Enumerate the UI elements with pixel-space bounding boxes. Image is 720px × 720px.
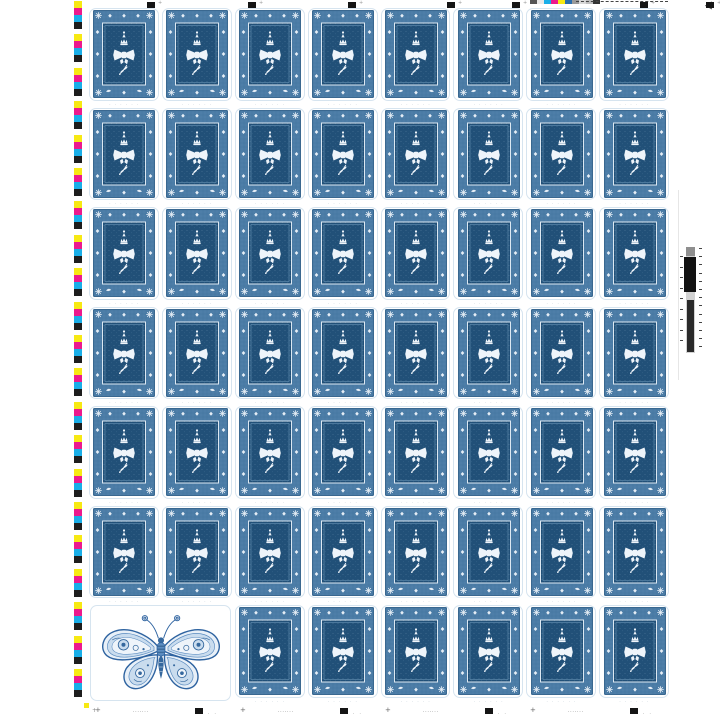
stamp-artwork [384,508,448,596]
stamp-microtext: · · · · · · [161,600,234,604]
stamp-microtext: · · · · · · [234,202,307,206]
cyan-patch [74,449,82,456]
density-block-dark [684,257,696,292]
density-guide-line [678,190,679,380]
yellow-patch [74,268,82,275]
cmyk-patch-group [74,435,82,463]
black-patch [74,323,82,330]
stamp-cell: · · · · · · [88,207,161,307]
yellow-patch [74,235,82,242]
bottom-microtext: ······· [568,710,584,714]
black-patch [74,356,82,363]
cmyk-patch-group [74,68,82,96]
density-tick [680,298,683,299]
magenta-patch [74,309,82,316]
magenta-patch [74,108,82,115]
registration-plus-mark: + [458,0,462,6]
yellow-patch [74,502,82,509]
cmyk-patch-group [74,335,82,363]
black-patch [74,690,82,697]
stamp-cell: · · · · · · [234,8,307,108]
magenta-patch [74,175,82,182]
stamp-artwork [165,110,229,198]
stamp-cell: · · · · · · [525,207,598,307]
density-tick [699,289,702,290]
stamp-cell: · · · · · · [88,307,161,407]
bottom-micro-dots: · · [498,711,508,716]
stamp-cell: · · · · · · [234,605,307,705]
cyan-patch [74,650,82,657]
stamp-microtext: · · · · · · [525,302,598,306]
cmyk-patch-group [74,636,82,664]
stamp-cell: · · · · · · [161,8,234,108]
cmyk-patch-group [74,201,82,229]
mini-strip-patch [544,0,551,4]
density-tick [699,305,702,306]
cyan-patch [74,549,82,556]
stamp-cell: · · · · · · [452,605,525,705]
black-patch [74,289,82,296]
stamp-cell: · · · · · · [88,506,161,606]
bottom-micro-dots: · · [643,711,653,716]
stamp-cell: · · · · · · [307,605,380,705]
stamp-artwork [530,110,594,198]
cyan-patch [74,483,82,490]
cmyk-patch-group [74,135,82,163]
stamp-cell: · · · · · · [525,605,598,705]
stamp-artwork [384,607,448,695]
registration-plus-mark: + [651,0,655,6]
butterfly-pane [88,605,234,705]
bottom-micro-dots: · · [353,711,363,716]
cyan-patch [74,249,82,256]
stamp-microtext: · · · · · · [380,501,453,505]
stamp-artwork [92,10,156,98]
density-tick [680,330,683,331]
stamp-microtext: · · · · · · [380,401,453,405]
stamp-artwork [530,309,594,397]
cyan-patch [74,382,82,389]
black-patch [74,389,82,396]
magenta-patch [74,576,82,583]
stamp-microtext: · · · · · · [452,202,525,206]
mini-strip-patch [565,0,572,4]
cyan-patch [74,683,82,690]
registration-plus-mark: + [259,0,263,6]
magenta-patch [74,342,82,349]
cmyk-patch-group [74,235,82,263]
stamp-microtext: · · · · · · [307,103,380,107]
cmyk-patch-group [74,502,82,530]
registration-plus-mark: + [359,0,363,6]
density-tick [699,264,702,265]
stamp-cell: · · · · · · [234,207,307,307]
cmyk-patch-group [74,101,82,129]
stamp-microtext: · · · · · · [525,103,598,107]
density-tick [680,319,683,320]
stamp-microtext: · · · · · · [380,103,453,107]
bottom-microtext: ······· [133,710,149,714]
stamp-artwork [603,408,667,496]
cyan-patch [74,583,82,590]
magenta-patch [74,375,82,382]
stamp-artwork [457,607,521,695]
butterfly-artwork [90,605,232,701]
stamp-cell: · · · · · · [380,307,453,407]
cyan-patch [74,215,82,222]
stamp-artwork [238,209,302,297]
magenta-patch [74,676,82,683]
registration-cross: + [385,706,391,714]
mini-strip-patch [537,0,544,4]
stamp-microtext: · · · · · · [598,202,671,206]
density-tick [680,340,683,341]
cyan-patch [74,48,82,55]
stamp-cell: · · · · · · [307,108,380,208]
stamp-artwork [530,408,594,496]
stamp-cell: · · · · · · [452,307,525,407]
stamp-microtext: · · · · · · [234,302,307,306]
stamp-microtext: · · · · · · [88,302,161,306]
cmyk-patch-group [74,368,82,396]
density-strip [676,190,706,390]
magenta-patch [74,41,82,48]
stamp-artwork [603,309,667,397]
stamp-cell: · · · · · · [452,108,525,208]
stamp-microtext: · · · · · · [307,600,380,604]
stamp-artwork [457,508,521,596]
bottom-microtext: ······· [278,710,294,714]
magenta-patch [74,609,82,616]
yellow-patch [74,636,82,643]
stamp-artwork [311,607,375,695]
cmyk-patch-group [74,34,82,62]
stamp-artwork [311,10,375,98]
stamp-microtext: · · · · · · [380,600,453,604]
stamp-microtext: · · · · · · [452,600,525,604]
stamp-artwork [311,309,375,397]
stamp-cell: · · · · · · [525,506,598,606]
press-sheet-canvas: +++++++ · · · · · ·· · · · · ·· · · · · … [0,0,720,720]
black-patch [74,156,82,163]
cyan-patch [74,316,82,323]
black-patch [74,189,82,196]
stamp-cell: · · · · · · [307,506,380,606]
stamp-cell: · · · · · · [598,605,671,705]
black-patch [74,423,82,430]
stamp-cell: · · · · · · [598,307,671,407]
cyan-patch [74,82,82,89]
black-patch [74,89,82,96]
density-tick [699,281,702,282]
stamp-cell: · · · · · · [598,108,671,208]
magenta-patch [74,142,82,149]
stamp-microtext: · · · · · · [452,302,525,306]
stamp-microtext: · · · · · · [234,103,307,107]
stamp-cell: · · · · · · [88,108,161,208]
stamp-artwork [384,408,448,496]
stamp-artwork [603,110,667,198]
stamp-artwork [457,408,521,496]
yellow-patch [74,335,82,342]
stamp-cell: · · · · · · [380,506,453,606]
black-patch [74,590,82,597]
density-tick [699,314,702,315]
stamp-microtext: · · · · · · [525,501,598,505]
magenta-patch [74,509,82,516]
cmyk-patch-group [74,602,82,630]
mini-strip-patch [558,0,565,4]
stamp-artwork [311,209,375,297]
stamp-cell: · · · · · · [161,406,234,506]
registration-plus-mark: + [158,0,162,6]
cmyk-patch-group [74,168,82,196]
stamp-cell: · · · · · · [307,8,380,108]
yellow-patch [74,602,82,609]
stamp-microtext: · · · · · · [161,302,234,306]
stamp-artwork [384,309,448,397]
stamp-cell: · · · · · · [161,307,234,407]
stamp-artwork [603,10,667,98]
registration-square [195,708,203,714]
registration-cross: + [240,706,246,714]
stamp-cell: · · · · · · [307,406,380,506]
cmyk-patch-group [74,669,82,697]
bottom-registration-marks: + +········ ·+········ ·+········ ·+····… [0,703,720,720]
stamp-microtext: · · · · · · [307,401,380,405]
stamp-cell: · · · · · · [161,207,234,307]
stamp-cell: · · · · · · [598,506,671,606]
registration-square [340,708,348,714]
stamp-artwork [92,209,156,297]
black-patch [74,256,82,263]
yellow-patch [74,168,82,175]
black-patch [74,657,82,664]
stamp-microtext: · · · · · · [598,600,671,604]
stamp-microtext: · · · · · · [88,600,161,604]
density-tick-ruler [699,248,703,354]
yellow-patch [74,68,82,75]
stamp-artwork [238,10,302,98]
magenta-patch [74,643,82,650]
mini-strip-patch [530,0,537,4]
registration-square [630,708,638,714]
stamp-artwork [165,209,229,297]
stamp-microtext: · · · · · · [307,501,380,505]
stamp-artwork [165,10,229,98]
stamp-artwork [165,309,229,397]
registration-cross: + [530,706,536,714]
bottom-microtext: ······· [423,710,439,714]
stamp-microtext: · · · · · · [234,501,307,505]
stamp-artwork [603,508,667,596]
stamp-cell: · · · · · · [234,406,307,506]
stamp-microtext: · · · · · · [234,401,307,405]
density-tick [680,277,683,278]
stamp-cell: · · · · · · [161,108,234,208]
yellow-patch [74,302,82,309]
stamp-artwork [238,408,302,496]
black-patch [74,22,82,29]
black-patch [74,222,82,229]
bottom-micro-dots: · · [208,711,218,716]
stamp-cell: · · · · · · [307,207,380,307]
black-patch [74,456,82,463]
yellow-patch [74,435,82,442]
stamp-microtext: · · · · · · [598,401,671,405]
stamp-cell: · · · · · · [88,406,161,506]
stamp-cell: · · · · · · [525,8,598,108]
cmyk-patch-group [74,535,82,563]
stamp-microtext: · · · · · · [380,202,453,206]
cmyk-patch-group [74,469,82,497]
stamp-cell: · · · · · · [452,406,525,506]
stamp-microtext: · · · · · · [452,103,525,107]
stamp-microtext: · · · · · · [525,600,598,604]
stamp-artwork [238,110,302,198]
stamp-microtext: · · · · · · [598,501,671,505]
yellow-patch [74,402,82,409]
black-patch [74,55,82,62]
stamp-artwork [384,209,448,297]
stamp-artwork [384,110,448,198]
density-cap [686,247,695,256]
stamp-artwork [384,10,448,98]
stamp-artwork [457,209,521,297]
stamp-cell: · · · · · · [598,406,671,506]
stamp-artwork [530,508,594,596]
density-tick [699,322,702,323]
stamp-cell: · · · · · · [380,207,453,307]
yellow-patch [74,201,82,208]
stamp-microtext: · · · · · · [598,302,671,306]
registration-cross: + [95,706,101,714]
yellow-patch [74,34,82,41]
stamp-cell: · · · · · · [452,207,525,307]
yellow-patch [74,669,82,676]
yellow-patch [74,101,82,108]
stamp-artwork [311,110,375,198]
stamp-microtext: · · · · · · [452,401,525,405]
stamp-cell: · · · · · · [380,605,453,705]
cyan-patch [74,349,82,356]
black-patch [74,122,82,129]
yellow-patch [74,368,82,375]
stamp-artwork [530,10,594,98]
registration-square [485,708,493,714]
stamp-cell: · · · · · · [380,108,453,208]
stamp-cell: · · · · · · [307,307,380,407]
cmyk-patch-group [74,569,82,597]
density-tick-ruler-left [680,256,683,356]
density-tick [699,297,702,298]
stamp-microtext: · · · · · · [88,103,161,107]
density-tick [699,256,702,257]
yellow-patch [74,135,82,142]
cmyk-patch-group [74,268,82,296]
stamp-microtext: · · · · · · [161,103,234,107]
stamp-microtext: · · · · · · [234,600,307,604]
stamp-microtext: · · · · · · [88,401,161,405]
density-tick [680,256,683,257]
stamp-artwork [92,110,156,198]
mini-strip-patch [551,0,558,4]
stamp-cell: · · · · · · [598,8,671,108]
stamp-microtext: · · · · · · [161,501,234,505]
yellow-patch [74,569,82,576]
black-patch [74,623,82,630]
stamp-cell: · · · · · · [525,307,598,407]
density-tick [680,288,683,289]
stamp-artwork [530,607,594,695]
stamp-cell: · · · · · · [598,207,671,307]
density-tick [680,309,683,310]
stamp-cell: · · · · · · [234,108,307,208]
density-tick [699,248,702,249]
registration-square [706,2,714,8]
stamp-microtext: · · · · · · [452,501,525,505]
cyan-patch [74,416,82,423]
stamp-cell: · · · · · · [452,506,525,606]
cyan-patch [74,616,82,623]
stamp-microtext: · · · · · · [598,103,671,107]
yellow-patch [74,469,82,476]
stamp-cell: · · · · · · [525,108,598,208]
cyan-patch [74,282,82,289]
cyan-patch [74,15,82,22]
stamp-artwork [311,508,375,596]
black-patch [74,556,82,563]
stamp-artwork [603,607,667,695]
stamp-artwork [92,408,156,496]
stamp-microtext: · · · · · · [161,202,234,206]
stamp-artwork [238,607,302,695]
stamp-microtext: · · · · · · [525,202,598,206]
magenta-patch [74,242,82,249]
stamp-artwork [457,110,521,198]
stamp-cell: · · · · · · [380,406,453,506]
stamp-artwork [457,10,521,98]
stamp-cell: · · · · · · [525,406,598,506]
stamp-artwork [311,408,375,496]
stamp-artwork [92,508,156,596]
stamp-cell: · · · · · · [234,506,307,606]
stamp-artwork [238,508,302,596]
cyan-patch [74,516,82,523]
stamp-artwork [165,408,229,496]
magenta-patch [74,442,82,449]
stamp-artwork [92,309,156,397]
density-tick [680,267,683,268]
magenta-patch [74,75,82,82]
stamp-cell: · · · · · · [88,8,161,108]
density-tick [699,273,702,274]
density-tick [699,338,702,339]
stamp-cell: · · · · · · [380,8,453,108]
magenta-patch [74,275,82,282]
cmyk-patch-group [74,302,82,330]
magenta-patch [74,542,82,549]
corner-yellow-patch [84,703,89,708]
stamp-cell: · · · · · · [161,506,234,606]
stamp-microtext: · · · · · · [88,501,161,505]
stamp-artwork [457,309,521,397]
cyan-patch [74,149,82,156]
cmyk-patch-group [74,402,82,430]
stamp-microtext: · · · · · · [88,202,161,206]
stamp-artwork [165,508,229,596]
stamp-cell: · · · · · · [234,307,307,407]
